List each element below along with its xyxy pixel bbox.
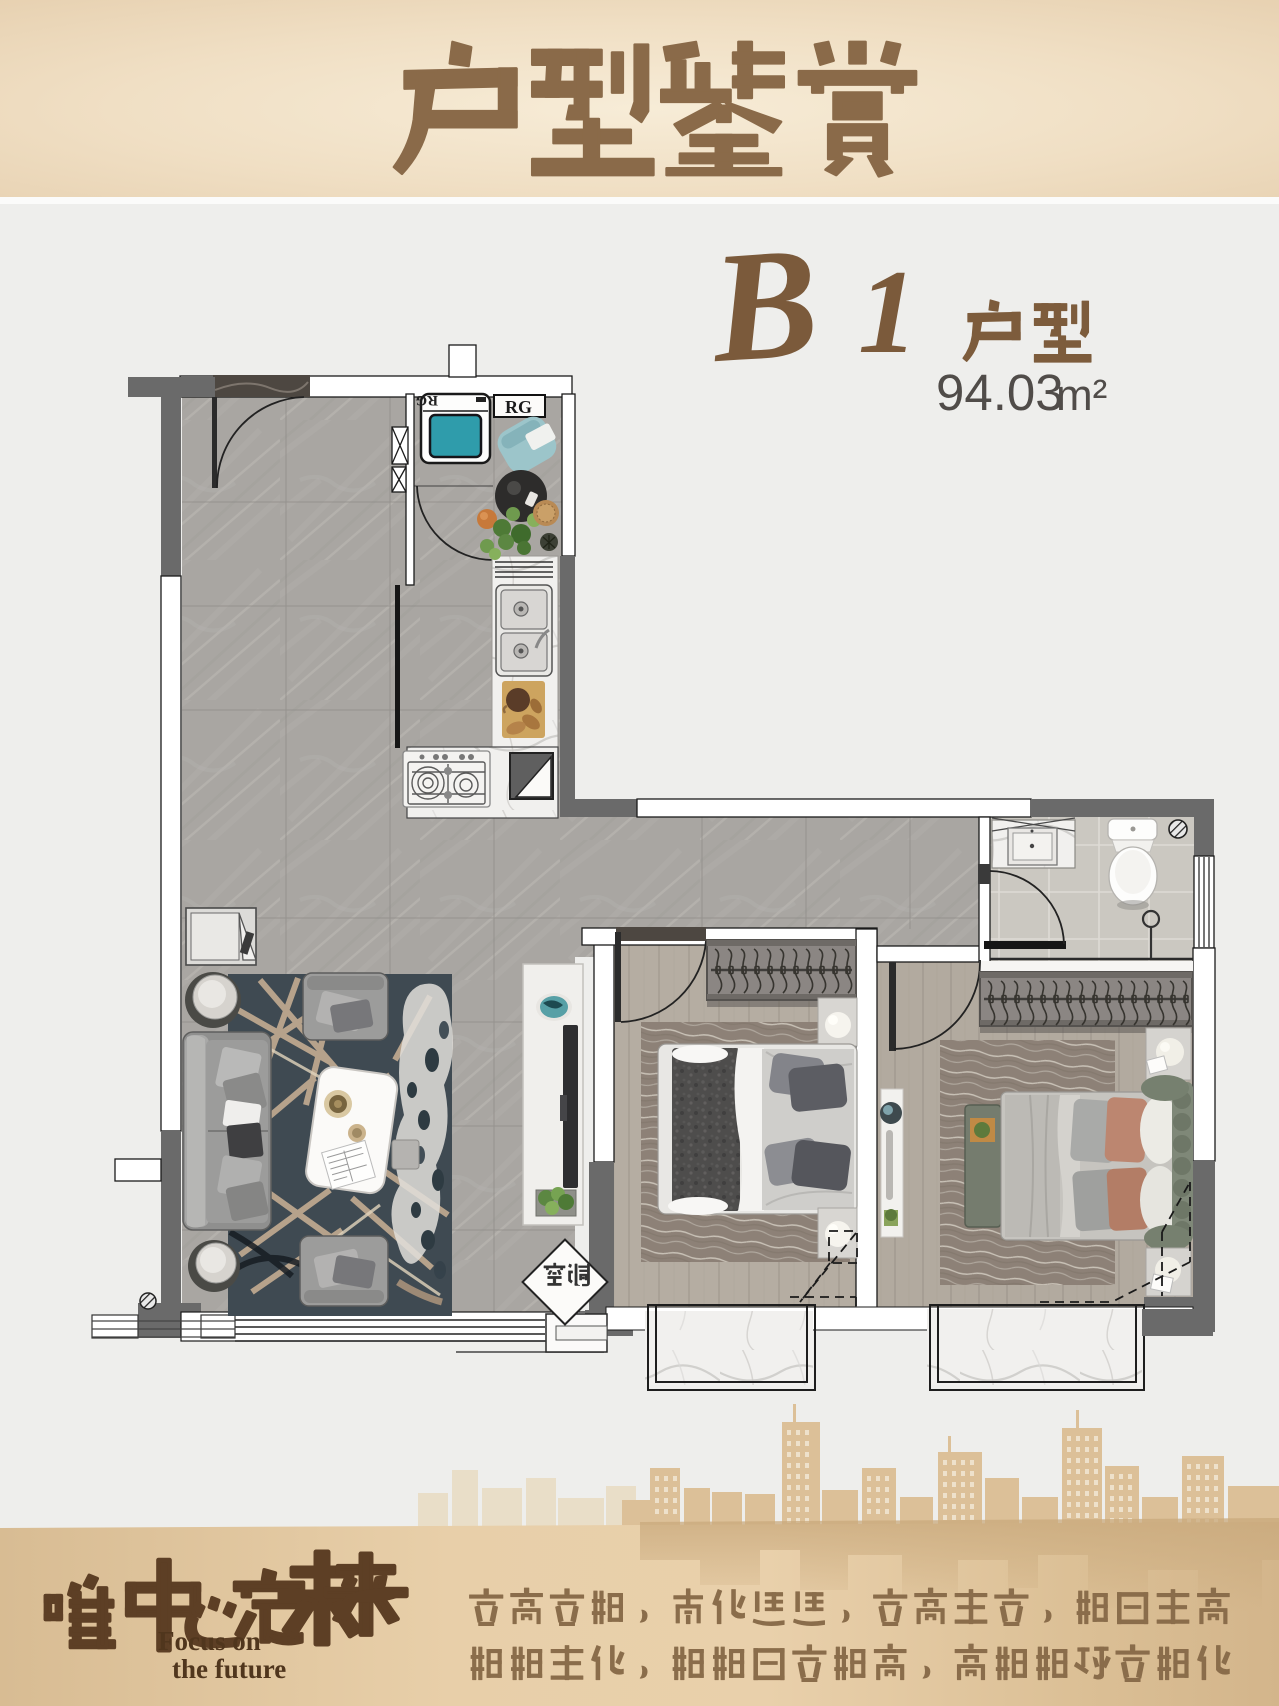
svg-text:94.03: 94.03 bbox=[936, 364, 1064, 421]
svg-text:1: 1 bbox=[858, 245, 918, 378]
svg-text:the future: the future bbox=[172, 1654, 286, 1684]
svg-text:RG: RG bbox=[505, 397, 532, 417]
svg-text:m²: m² bbox=[1056, 371, 1107, 420]
svg-text:B: B bbox=[704, 214, 823, 396]
svg-text:Focus on: Focus on bbox=[158, 1626, 261, 1656]
svg-text:RG: RG bbox=[415, 392, 438, 408]
